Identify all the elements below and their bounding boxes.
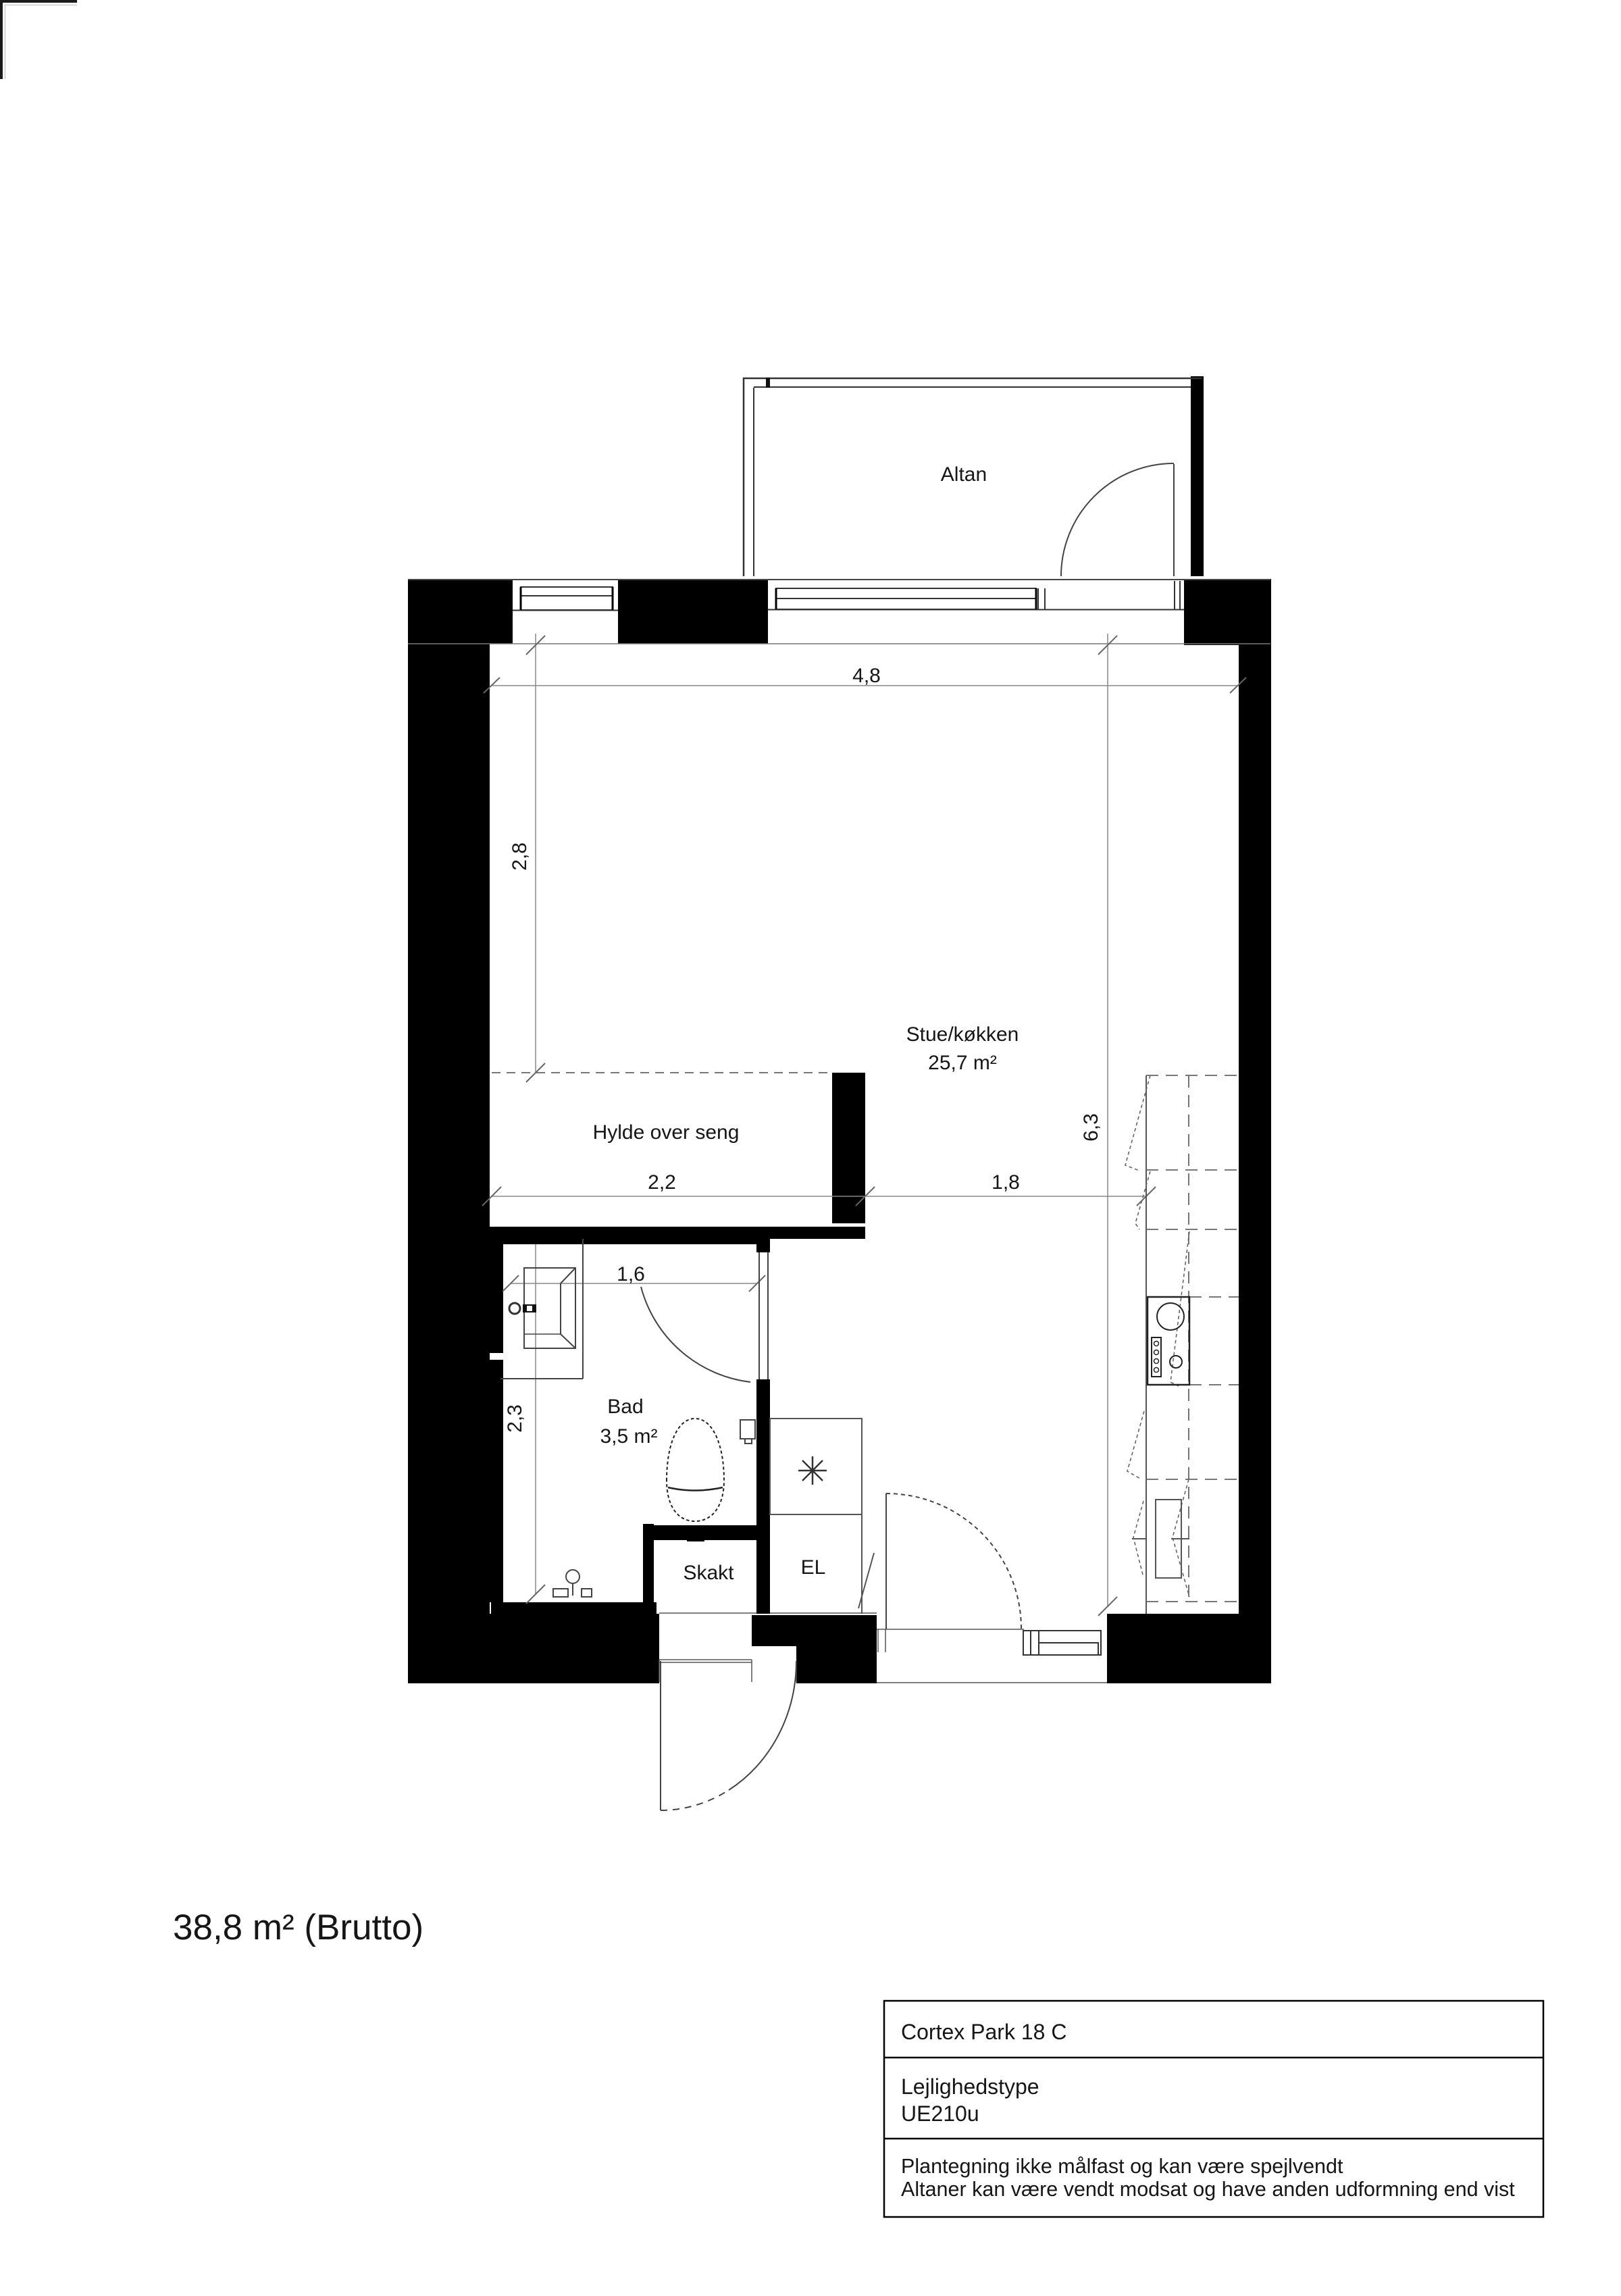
svg-text:Bad: Bad xyxy=(607,1396,643,1418)
svg-text:1,6: 1,6 xyxy=(617,1263,645,1285)
svg-text:38,8 m² (Brutto): 38,8 m² (Brutto) xyxy=(173,1908,423,1947)
svg-text:25,7 m²: 25,7 m² xyxy=(928,1052,997,1074)
svg-text:Stue/køkken: Stue/køkken xyxy=(906,1023,1019,1046)
svg-text:UE210u: UE210u xyxy=(901,2101,979,2126)
svg-text:EL: EL xyxy=(801,1556,826,1579)
svg-text:2,3: 2,3 xyxy=(504,1404,526,1433)
svg-text:Skakt: Skakt xyxy=(683,1562,734,1584)
svg-text:3,5 m²: 3,5 m² xyxy=(600,1425,657,1448)
svg-text:Cortex Park 18 C: Cortex Park 18 C xyxy=(901,2020,1066,2044)
svg-text:6,3: 6,3 xyxy=(1080,1113,1102,1142)
svg-text:Hylde over seng: Hylde over seng xyxy=(593,1121,740,1144)
svg-text:Altaner kan være vendt modsat: Altaner kan være vendt modsat og have an… xyxy=(901,2178,1515,2201)
svg-text:1,8: 1,8 xyxy=(992,1171,1020,1194)
svg-text:4,8: 4,8 xyxy=(852,665,881,687)
svg-text:Plantegning ikke målfast og ka: Plantegning ikke målfast og kan være spe… xyxy=(901,2155,1343,2178)
svg-text:2,2: 2,2 xyxy=(648,1171,676,1194)
svg-text:2,8: 2,8 xyxy=(509,842,531,871)
svg-text:Lejlighedstype: Lejlighedstype xyxy=(901,2074,1039,2099)
svg-text:Altan: Altan xyxy=(941,463,987,486)
